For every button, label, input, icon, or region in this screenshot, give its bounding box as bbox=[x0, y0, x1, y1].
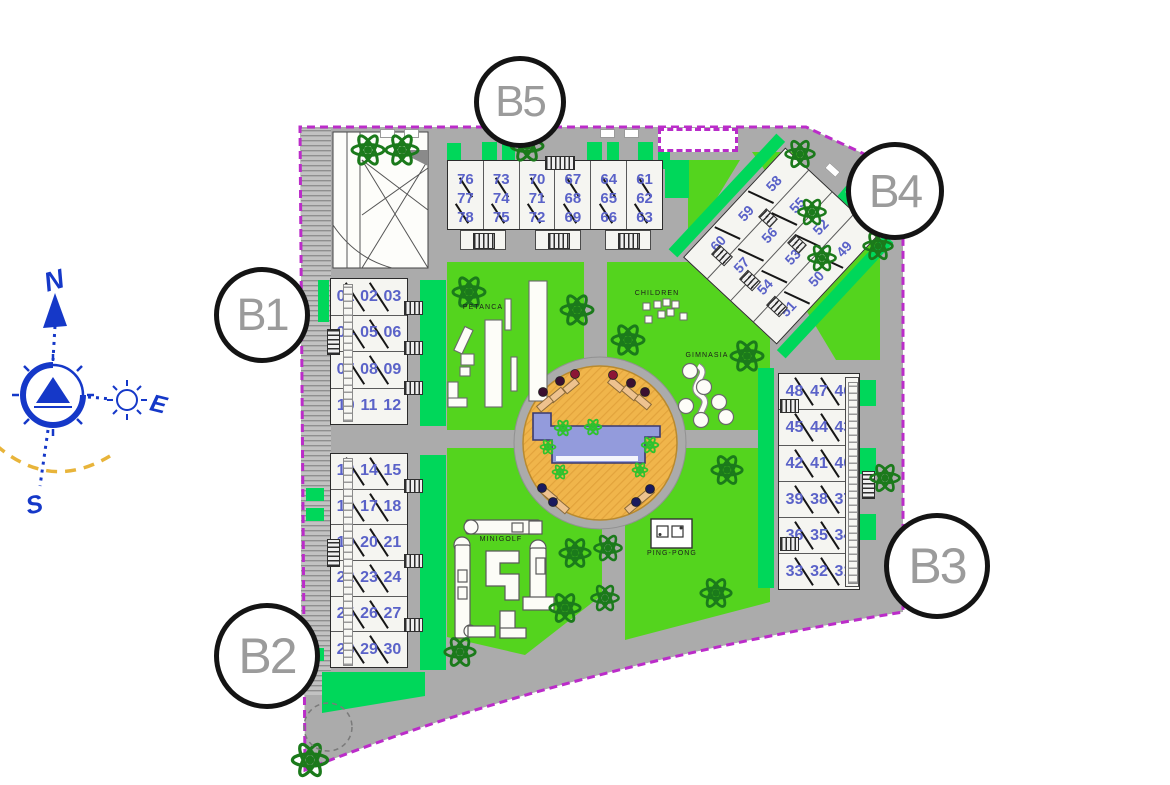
unit-number: 70 bbox=[529, 170, 546, 189]
stairs-icon bbox=[780, 537, 799, 551]
unit-number: 32 bbox=[810, 563, 828, 581]
b3-corridor-ticks bbox=[848, 382, 858, 584]
unit-number: 18 bbox=[384, 498, 402, 516]
unit-number: 77 bbox=[457, 189, 474, 208]
b2-corridor-ticks bbox=[343, 458, 353, 666]
unit-number: 69 bbox=[565, 208, 582, 227]
unit-column: 646566 bbox=[591, 161, 627, 229]
unit-number: 12 bbox=[383, 397, 401, 415]
unit-number: 30 bbox=[384, 641, 402, 659]
parking-tick bbox=[380, 129, 395, 138]
unit-number: 76 bbox=[457, 170, 474, 189]
unit-number: 27 bbox=[384, 605, 402, 623]
unit-number: 63 bbox=[636, 208, 653, 227]
unit-column: 707172 bbox=[520, 161, 556, 229]
stairs-icon bbox=[404, 301, 423, 315]
unit-number: 38 bbox=[810, 491, 828, 509]
compass-south-label: S bbox=[23, 489, 45, 520]
unit-number: 02 bbox=[360, 288, 378, 306]
children-label: CHILDREN bbox=[622, 290, 692, 297]
stairs-icon bbox=[404, 341, 423, 355]
unit-number: 72 bbox=[529, 208, 546, 227]
unit-number: 03 bbox=[384, 288, 402, 306]
unit-column: 616263 bbox=[627, 161, 662, 229]
compass-east-label: E bbox=[147, 390, 170, 420]
unit-number: 78 bbox=[457, 208, 474, 227]
pool-lane bbox=[556, 456, 638, 461]
block-label-b4: B4 bbox=[846, 142, 944, 240]
north-needle bbox=[43, 293, 67, 328]
unit-number: 44 bbox=[810, 419, 828, 437]
sun-arc bbox=[0, 445, 110, 472]
unit-number: 09 bbox=[384, 361, 402, 379]
unit-column: 737475 bbox=[484, 161, 520, 229]
unit-number: 71 bbox=[529, 189, 546, 208]
pingpong-label: PING-PONG bbox=[637, 550, 707, 557]
unit-number: 06 bbox=[384, 324, 402, 342]
site-plan: N E S 767778 737475 707172 676869 646566… bbox=[0, 0, 1170, 785]
block-label-b1: B1 bbox=[214, 267, 310, 363]
unit-number: 41 bbox=[810, 455, 828, 473]
building-b1: 010203 040506 070809 101112 bbox=[330, 278, 408, 425]
unit-number: 29 bbox=[360, 641, 378, 659]
unit-number: 66 bbox=[600, 208, 617, 227]
unit-number: 55 bbox=[786, 194, 808, 216]
stairs-icon bbox=[404, 554, 423, 568]
unit-number: 08 bbox=[360, 361, 378, 379]
unit-number: 48 bbox=[786, 383, 804, 401]
stairs-icon bbox=[404, 479, 423, 493]
unit-number: 42 bbox=[786, 455, 804, 473]
unit-number: 23 bbox=[360, 569, 378, 587]
compass-rose: N E S bbox=[0, 260, 180, 520]
unit-number: 21 bbox=[384, 534, 402, 552]
compass-north-label: N bbox=[40, 263, 67, 297]
petanca-label: PETANCA bbox=[448, 304, 518, 311]
parking-tick bbox=[600, 129, 615, 138]
block-label-b2: B2 bbox=[214, 603, 320, 709]
stairs-icon bbox=[545, 156, 575, 170]
unit-number: 65 bbox=[600, 189, 617, 208]
stairs-icon bbox=[548, 233, 570, 249]
unit-number: 17 bbox=[360, 498, 378, 516]
unit-column: 676869 bbox=[555, 161, 591, 229]
unit-number: 64 bbox=[600, 170, 617, 189]
unit-number: 33 bbox=[786, 563, 804, 581]
block-label-b3: B3 bbox=[884, 513, 990, 619]
unit-column: 767778 bbox=[448, 161, 484, 229]
unit-number: 11 bbox=[361, 397, 378, 415]
unit-number: 75 bbox=[493, 208, 510, 227]
ramp-structure bbox=[333, 132, 428, 268]
unit-number: 59 bbox=[735, 202, 757, 224]
unit-number: 20 bbox=[360, 534, 378, 552]
b1-corridor-ticks bbox=[343, 284, 353, 422]
block-label-b5: B5 bbox=[474, 56, 566, 148]
unit-number: 67 bbox=[565, 170, 582, 189]
stairs-icon bbox=[404, 381, 423, 395]
unit-number: 49 bbox=[833, 237, 855, 259]
stairs-icon bbox=[618, 233, 640, 249]
unit-number: 45 bbox=[786, 419, 804, 437]
unit-number: 73 bbox=[493, 170, 510, 189]
unit-number: 52 bbox=[809, 216, 831, 238]
unit-number: 74 bbox=[493, 189, 510, 208]
unit-number: 05 bbox=[360, 324, 378, 342]
unit-number: 47 bbox=[810, 383, 828, 401]
unit-number: 14 bbox=[360, 462, 378, 480]
unit-number: 15 bbox=[384, 462, 402, 480]
unit-number: 26 bbox=[360, 605, 378, 623]
stairs-icon bbox=[780, 399, 799, 413]
stairs-icon bbox=[473, 233, 495, 249]
unit-number: 58 bbox=[763, 172, 785, 194]
stairs-icon bbox=[404, 618, 423, 632]
elevator-icon bbox=[862, 471, 875, 499]
elevator-icon bbox=[327, 539, 340, 567]
unit-number: 35 bbox=[810, 527, 828, 545]
west-sidewalk-hatch bbox=[301, 129, 331, 695]
unit-number: 24 bbox=[384, 569, 402, 587]
building-b5: 767778 737475 707172 676869 646566 61626… bbox=[447, 160, 663, 230]
elevator-icon bbox=[327, 329, 340, 355]
gimnasia-label: GIMNASIA bbox=[672, 352, 742, 359]
parking-tick bbox=[404, 129, 419, 138]
unit-number: 61 bbox=[636, 170, 653, 189]
sun-icon bbox=[117, 390, 137, 410]
building-b2: 131415 161718 192021 222324 252627 28293… bbox=[330, 453, 408, 668]
unit-number: 62 bbox=[636, 189, 653, 208]
entrance-rect bbox=[658, 128, 738, 152]
unit-number: 50 bbox=[805, 267, 827, 289]
unit-number: 39 bbox=[786, 491, 804, 509]
unit-number: 68 bbox=[565, 189, 582, 208]
parking-tick bbox=[624, 129, 639, 138]
minigolf-label: MINIGOLF bbox=[466, 536, 536, 543]
